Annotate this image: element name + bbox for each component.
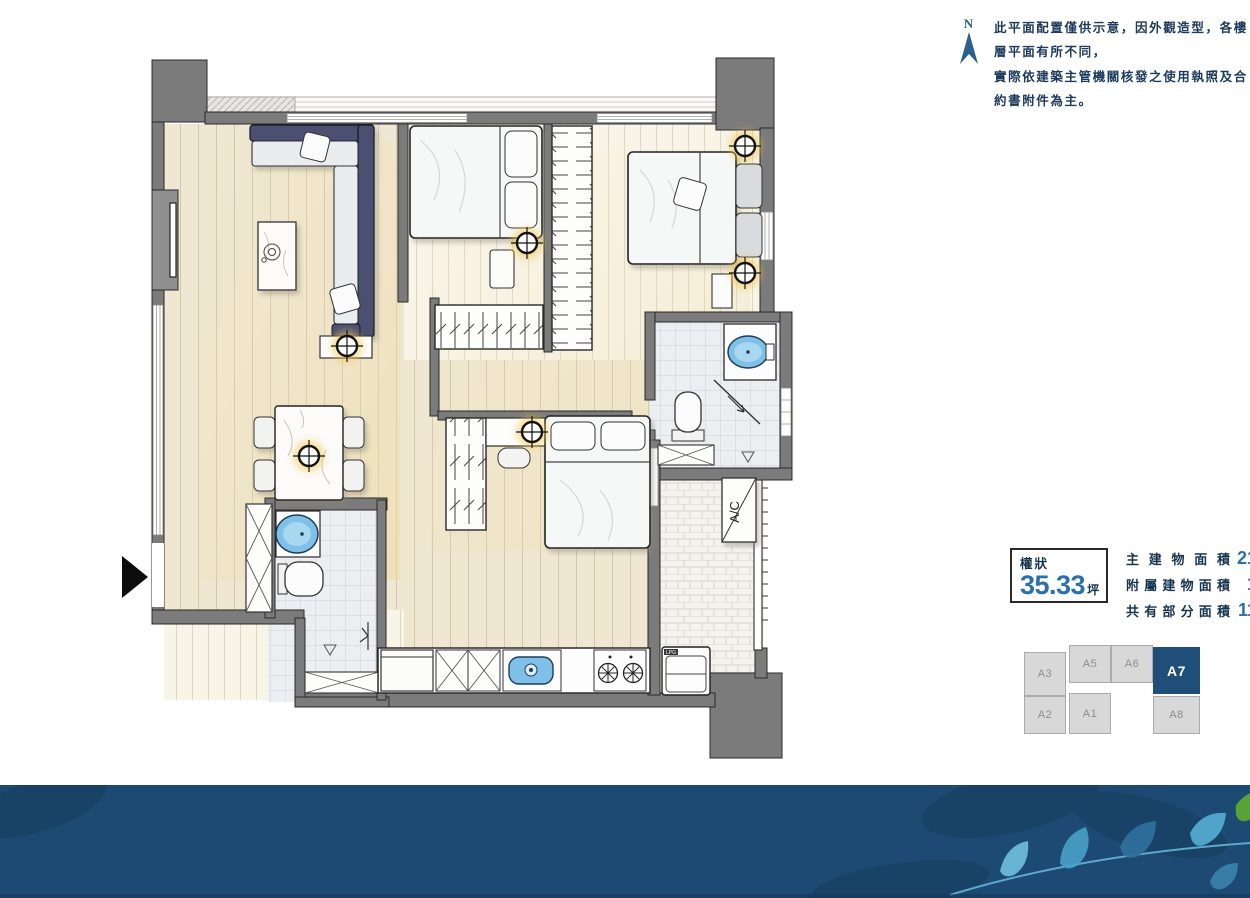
area-rows: 主建物面積 21.76 坪 附屬建物面積 1.61 坪 共有部分面積 11.96… bbox=[1126, 548, 1250, 626]
north-label: N bbox=[958, 16, 980, 32]
north-arrow-icon bbox=[958, 32, 980, 66]
area-row-main: 主建物面積 21.76 坪 bbox=[1126, 548, 1250, 574]
master-bedroom bbox=[446, 416, 650, 548]
disclaimer: 此平面配置僅供示意，因外觀造型，各樓層平面有所不同， 實際依建築主管機關核發之使… bbox=[994, 16, 1250, 114]
kitchen-sink bbox=[503, 650, 561, 691]
sofa-pillow-1 bbox=[299, 131, 331, 163]
chair bbox=[254, 417, 275, 448]
bed-2 bbox=[628, 152, 736, 264]
keyplan-unit-a1: A1 bbox=[1069, 693, 1111, 734]
coffee-table bbox=[258, 222, 296, 290]
bath1-cabinet bbox=[305, 672, 379, 693]
wall-living-bed1 bbox=[398, 124, 408, 302]
bath2-cabinet bbox=[658, 445, 714, 465]
pillow bbox=[505, 182, 537, 228]
chair bbox=[343, 417, 364, 448]
area-row-ancillary: 附屬建物面積 1.61 坪 bbox=[1126, 574, 1250, 600]
tv bbox=[170, 203, 176, 277]
area-row-value: 21.76 bbox=[1230, 548, 1250, 569]
wall-living-bottom bbox=[152, 610, 304, 624]
disclaimer-line2: 實際依建築主管機關核發之使用執照及合約書附件為主。 bbox=[994, 65, 1250, 114]
tv-unit bbox=[152, 190, 178, 290]
window-bath2 bbox=[781, 388, 791, 436]
area-row-label: 附屬建物面積 bbox=[1126, 575, 1230, 594]
wall-bed1-right bbox=[544, 124, 552, 352]
deed-unit: 坪 bbox=[1087, 583, 1099, 597]
column-top-right bbox=[716, 58, 774, 130]
kitchen bbox=[378, 648, 650, 693]
cushion-a bbox=[736, 164, 762, 208]
washer: LPG bbox=[662, 647, 710, 695]
area-row-shared: 共有部分面積 11.96 坪 bbox=[1126, 600, 1250, 626]
closet-column bbox=[552, 126, 592, 350]
page: A/C LPG bbox=[0, 0, 1250, 898]
wall-bath1-bottom bbox=[295, 697, 389, 707]
window-left bbox=[153, 305, 163, 535]
north-arrow: N bbox=[958, 16, 980, 114]
area-row-value: 1.61 bbox=[1230, 574, 1250, 595]
stove bbox=[594, 650, 646, 691]
balcony-door bbox=[650, 448, 658, 506]
wall-balcony-lower bbox=[755, 648, 767, 678]
faucet-2 bbox=[766, 344, 774, 360]
keyplan-unit-a5: A5 bbox=[1069, 645, 1111, 683]
wall-bath2-top bbox=[645, 312, 792, 322]
deed-value: 35.33 bbox=[1020, 570, 1085, 600]
wardrobe-1 bbox=[435, 305, 543, 349]
cushion-b bbox=[736, 213, 762, 257]
keyplan-unit-a3: A3 bbox=[1024, 652, 1066, 696]
nightstand-1 bbox=[490, 250, 514, 288]
keyplan-unit-a7: A7 bbox=[1153, 647, 1200, 694]
pillow bbox=[601, 422, 645, 450]
footer-banner: 勝旺家 4.6.8.10.12F A7戶 傢俱配置圖 bbox=[0, 785, 1250, 898]
entry-arrow bbox=[122, 556, 148, 598]
area-row-value: 11.96 bbox=[1230, 600, 1250, 621]
chair bbox=[254, 460, 275, 491]
tall-cabinet bbox=[246, 504, 272, 612]
toilet-1 bbox=[285, 562, 323, 596]
keyplan-unit-a6: A6 bbox=[1111, 645, 1153, 683]
area-row-label: 共有部分面積 bbox=[1126, 601, 1230, 620]
column-bottom-right bbox=[710, 673, 782, 758]
keyplan: A3 A5 A6 A7 A2 A1 A8 bbox=[1022, 644, 1200, 736]
deed-area-box: 權狀 35.33坪 bbox=[1010, 548, 1108, 603]
nightstand-2 bbox=[712, 274, 732, 308]
keyplan-unit-a8: A8 bbox=[1153, 696, 1200, 734]
wall-bath1-step bbox=[295, 618, 305, 702]
wardrobe-master bbox=[446, 418, 486, 530]
kitchen-cabinets bbox=[436, 650, 500, 691]
wall-bath2-left-a bbox=[645, 312, 655, 400]
window-top-1 bbox=[287, 114, 467, 123]
area-info: 權狀 35.33坪 主建物面積 21.76 坪 附屬建物面積 1.61 坪 共有… bbox=[1010, 548, 1250, 626]
window-top-2 bbox=[597, 114, 712, 123]
fridge bbox=[381, 650, 433, 691]
column-top-left bbox=[152, 60, 207, 122]
stool bbox=[498, 448, 530, 468]
bedroom1 bbox=[410, 126, 592, 350]
pillow bbox=[551, 422, 595, 450]
area-row-label: 主建物面積 bbox=[1126, 549, 1230, 568]
toilet-2 bbox=[675, 392, 701, 432]
washer-label: LPG bbox=[666, 650, 676, 656]
ac-unit: A/C bbox=[722, 478, 756, 542]
eave-hatch bbox=[207, 97, 295, 113]
disclaimer-line1: 此平面配置僅供示意，因外觀造型，各樓層平面有所不同， bbox=[994, 16, 1250, 65]
north-note: N 此平面配置僅供示意，因外觀造型，各樓層平面有所不同， 實際依建築主管機關核發… bbox=[958, 16, 1250, 114]
entry-opening bbox=[152, 543, 164, 607]
chair bbox=[343, 460, 364, 491]
ac-label: A/C bbox=[727, 501, 742, 523]
footer-art bbox=[0, 785, 1250, 898]
wall-bath2-bottom bbox=[645, 468, 792, 480]
pillow bbox=[505, 131, 537, 177]
keyplan-unit-a2: A2 bbox=[1024, 696, 1066, 734]
window-right bbox=[761, 212, 773, 260]
floor-plan: A/C LPG bbox=[0, 0, 1250, 898]
